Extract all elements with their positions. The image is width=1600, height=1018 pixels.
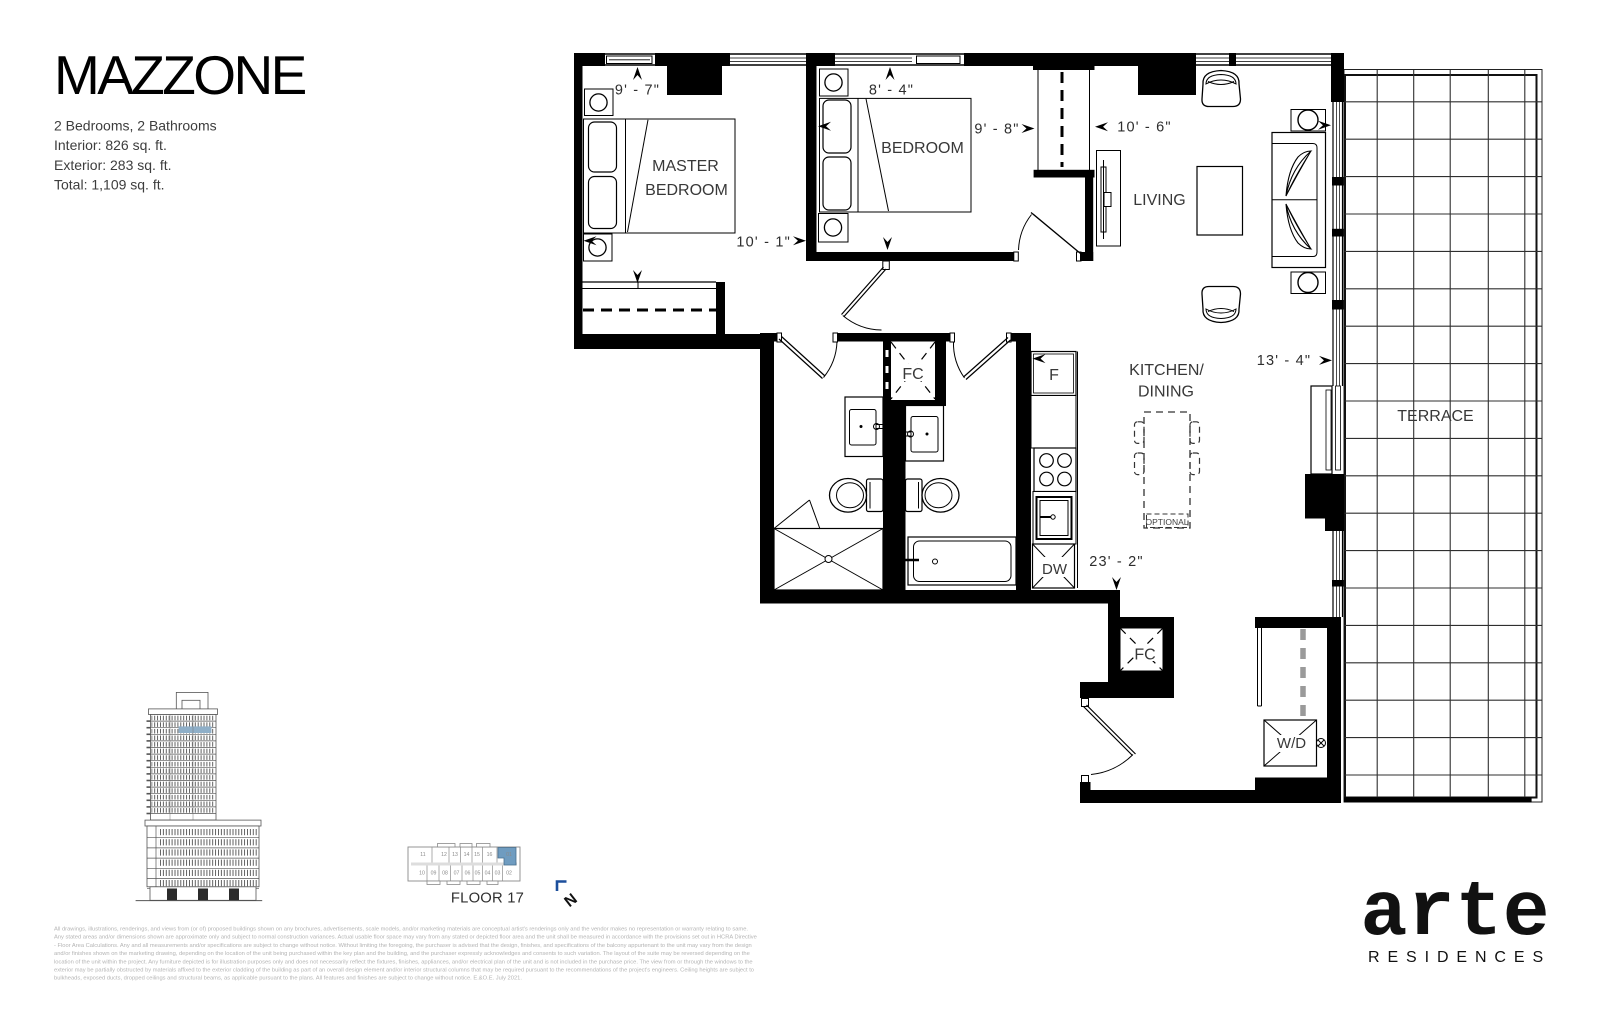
svg-text:03: 03: [495, 871, 501, 877]
svg-text:16: 16: [487, 852, 493, 858]
svg-text:10' - 6": 10' - 6": [1117, 120, 1172, 136]
svg-text:2 Bedrooms, 2 Bathrooms: 2 Bedrooms, 2 Bathrooms: [54, 118, 217, 134]
svg-text:FC: FC: [1134, 647, 1155, 664]
svg-text:All drawings, illustrations, r: All drawings, illustrations, renderings,…: [54, 927, 748, 933]
svg-text:MAZZONE: MAZZONE: [54, 44, 306, 106]
svg-text:23' - 2": 23' - 2": [1089, 554, 1144, 570]
svg-text:01: 01: [506, 852, 512, 858]
svg-text:and/or finishes shown on the m: and/or finishes shown on the marketing d…: [54, 951, 750, 957]
svg-text:BEDROOM: BEDROOM: [881, 140, 964, 157]
svg-text:OPTIONAL: OPTIONAL: [1146, 517, 1189, 527]
svg-text:12: 12: [441, 852, 447, 858]
svg-text:07: 07: [454, 871, 460, 877]
svg-text:Interior: 826 sq. ft.: Interior: 826 sq. ft.: [54, 137, 167, 153]
svg-text:RESIDENCES: RESIDENCES: [1368, 949, 1551, 966]
svg-text:arte: arte: [1361, 870, 1551, 958]
svg-text:Total: 1,109 sq. ft.: Total: 1,109 sq. ft.: [54, 177, 165, 193]
svg-text:BEDROOM: BEDROOM: [645, 182, 728, 199]
svg-text:bulkheads, exposed ducts, drop: bulkheads, exposed ducts, dropped ceilin…: [54, 976, 522, 982]
svg-text:LIVING: LIVING: [1133, 192, 1185, 209]
svg-text:KITCHEN/: KITCHEN/: [1129, 362, 1204, 379]
svg-text:- Floor Area Calculations. Any: - Floor Area Calculations. Any and all m…: [54, 943, 752, 949]
svg-text:location of the unit within th: location of the unit within the project.…: [54, 959, 753, 965]
svg-text:DW: DW: [1042, 561, 1068, 578]
svg-text:05: 05: [475, 871, 481, 877]
svg-text:09: 09: [431, 871, 437, 877]
svg-text:DINING: DINING: [1138, 384, 1194, 401]
svg-text:13: 13: [452, 852, 458, 858]
svg-text:04: 04: [485, 871, 491, 877]
svg-text:8' - 4": 8' - 4": [869, 83, 914, 99]
svg-text:Exterior: 283 sq. ft.: Exterior: 283 sq. ft.: [54, 157, 172, 173]
svg-text:9' - 8": 9' - 8": [974, 122, 1019, 138]
svg-text:exterior may be partially obst: exterior may be partially obstructed by …: [54, 968, 754, 974]
svg-text:MASTER: MASTER: [652, 158, 719, 175]
svg-text:11: 11: [420, 852, 425, 858]
svg-text:14: 14: [464, 852, 470, 858]
svg-text:02: 02: [506, 871, 512, 877]
svg-text:FLOOR 17: FLOOR 17: [451, 891, 524, 907]
svg-text:13' - 4": 13' - 4": [1257, 353, 1312, 369]
svg-text:F: F: [1049, 367, 1059, 384]
svg-text:W/D: W/D: [1277, 735, 1306, 752]
svg-text:TERRACE: TERRACE: [1397, 408, 1473, 425]
svg-text:10: 10: [419, 871, 425, 877]
svg-text:15: 15: [474, 852, 480, 858]
svg-text:06: 06: [465, 871, 471, 877]
svg-text:08: 08: [442, 871, 448, 877]
svg-text:FC: FC: [902, 366, 923, 383]
svg-text:Any stated areas and/or dimens: Any stated areas and/or dimensions shown…: [54, 935, 757, 941]
svg-text:10' - 1": 10' - 1": [736, 234, 791, 250]
svg-text:9' - 7": 9' - 7": [615, 83, 660, 99]
